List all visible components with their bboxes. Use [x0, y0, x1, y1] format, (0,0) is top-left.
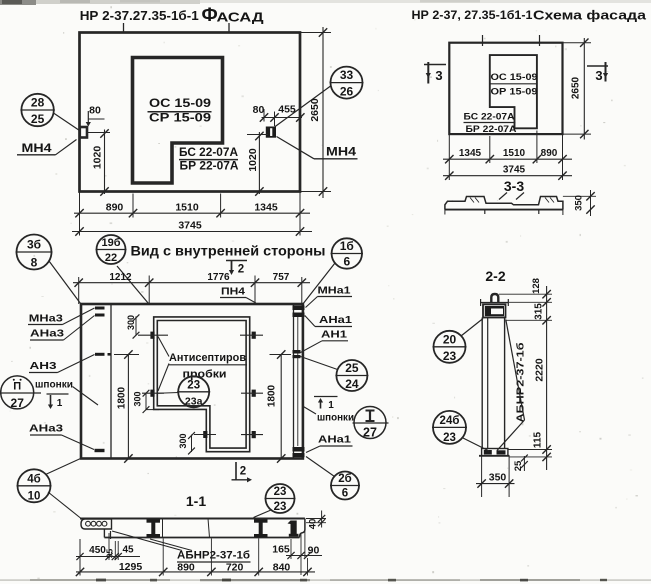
svg-text:БР 22-07А: БР 22-07А — [180, 161, 239, 173]
svg-text:СР 15-09: СР 15-09 — [149, 113, 211, 125]
svg-text:МН4: МН4 — [326, 147, 357, 159]
svg-text:6: 6 — [343, 255, 350, 269]
svg-text:3б: 3б — [27, 238, 41, 252]
svg-text:23: 23 — [443, 349, 457, 363]
svg-text:1345: 1345 — [459, 148, 482, 159]
svg-text:24: 24 — [345, 377, 359, 391]
svg-text:45: 45 — [122, 545, 134, 556]
svg-text:80: 80 — [89, 105, 101, 117]
svg-text:350: 350 — [489, 472, 507, 484]
svg-text:3745: 3745 — [178, 220, 202, 232]
svg-text:АНа1: АНа1 — [318, 434, 351, 446]
svg-text:АБНР2-37-1б: АБНР2-37-1б — [177, 550, 250, 562]
svg-text:26: 26 — [340, 85, 354, 99]
svg-text:2б: 2б — [338, 473, 352, 485]
svg-text:1212: 1212 — [109, 272, 132, 283]
svg-text:90: 90 — [308, 545, 320, 557]
svg-text:АБНР2-37-1б: АБНР2-37-1б — [515, 342, 527, 423]
svg-text:25: 25 — [513, 460, 524, 471]
svg-text:2650: 2650 — [571, 76, 582, 99]
svg-text:2-2: 2-2 — [485, 268, 505, 284]
svg-text:1020: 1020 — [92, 146, 104, 170]
svg-text:шпонки: шпонки — [35, 379, 73, 391]
svg-text:1020: 1020 — [247, 148, 259, 172]
svg-text:757: 757 — [273, 272, 290, 283]
svg-text:350: 350 — [574, 195, 585, 211]
svg-text:БР 22-07А: БР 22-07А — [466, 124, 517, 135]
svg-text:27: 27 — [11, 396, 25, 410]
svg-text:28: 28 — [31, 96, 45, 110]
svg-text:22: 22 — [105, 252, 117, 264]
svg-text:Антисептиров: Антисептиров — [169, 352, 246, 364]
svg-text:БС 22-07А: БС 22-07А — [464, 112, 515, 123]
svg-text:720: 720 — [226, 562, 244, 574]
svg-text:27: 27 — [363, 426, 377, 440]
svg-text:23: 23 — [274, 486, 287, 498]
svg-text:Ф: Ф — [202, 5, 218, 26]
svg-text:БС 22-07А: БС 22-07А — [179, 147, 238, 159]
svg-text:8: 8 — [31, 256, 38, 270]
svg-text:3-3: 3-3 — [504, 178, 524, 194]
svg-text:2220: 2220 — [534, 358, 546, 382]
svg-text:2: 2 — [240, 466, 246, 478]
svg-text:МН4: МН4 — [22, 143, 53, 155]
svg-text:3: 3 — [435, 68, 442, 83]
svg-text:3745: 3745 — [503, 165, 526, 176]
svg-text:40: 40 — [308, 519, 319, 530]
svg-text:шпонки: шпонки — [317, 412, 354, 424]
svg-text:П: П — [13, 381, 21, 393]
svg-text:АН1: АН1 — [321, 329, 347, 341]
svg-text:3: 3 — [595, 68, 602, 83]
svg-text:315: 315 — [534, 303, 545, 320]
svg-text:25: 25 — [345, 361, 359, 375]
svg-text:840: 840 — [273, 562, 291, 574]
svg-text:23: 23 — [443, 432, 456, 444]
svg-text:19б: 19б — [101, 237, 120, 249]
svg-text:ОР 15-09: ОР 15-09 — [491, 87, 538, 98]
svg-text:4б: 4б — [27, 473, 41, 485]
svg-text:НР 2-37, 27.35-1б1-1: НР 2-37, 27.35-1б1-1 — [412, 10, 534, 22]
svg-text:24б: 24б — [440, 415, 460, 427]
svg-text:300: 300 — [178, 433, 188, 448]
svg-text:ОС 15-09: ОС 15-09 — [149, 98, 211, 110]
svg-text:2: 2 — [238, 264, 244, 276]
svg-text:300: 300 — [133, 391, 143, 406]
svg-text:1800: 1800 — [267, 384, 278, 407]
svg-text:2650: 2650 — [309, 98, 321, 122]
svg-text:20: 20 — [443, 332, 457, 346]
svg-text:115: 115 — [533, 431, 544, 448]
svg-text:10: 10 — [28, 490, 41, 502]
svg-text:23а: 23а — [185, 395, 203, 407]
svg-text:1510: 1510 — [503, 148, 526, 159]
svg-text:23: 23 — [274, 501, 287, 513]
svg-text:АСАД: АСАД — [217, 11, 264, 25]
svg-text:Схема фасада: Схема фасада — [533, 9, 647, 23]
svg-text:НР 2-37.27.35-1б-1: НР 2-37.27.35-1б-1 — [80, 9, 199, 23]
svg-text:890: 890 — [106, 202, 124, 214]
svg-text:ПН4: ПН4 — [221, 287, 246, 298]
svg-text:1345: 1345 — [254, 202, 278, 214]
svg-text:1-1: 1-1 — [186, 493, 206, 509]
svg-text:890: 890 — [177, 562, 195, 574]
svg-text:1: 1 — [328, 400, 334, 411]
svg-text:1: 1 — [57, 398, 63, 409]
svg-text:АН3: АН3 — [30, 360, 57, 372]
svg-text:МНа3: МНа3 — [29, 313, 63, 325]
svg-text:6: 6 — [342, 488, 348, 500]
svg-text:ОС 15-09: ОС 15-09 — [491, 72, 538, 83]
svg-text:МНа1: МНа1 — [318, 285, 351, 297]
svg-text:АНа1: АНа1 — [319, 314, 352, 326]
svg-text:25: 25 — [31, 112, 45, 126]
svg-text:1295: 1295 — [119, 561, 143, 573]
svg-text:1800: 1800 — [117, 386, 128, 409]
svg-text:128: 128 — [531, 278, 542, 294]
svg-text:33: 33 — [340, 68, 354, 82]
svg-text:80: 80 — [253, 104, 265, 116]
svg-text:АНа3: АНа3 — [30, 328, 64, 340]
svg-text:300: 300 — [126, 315, 136, 330]
svg-text:23: 23 — [187, 379, 200, 391]
svg-text:1б: 1б — [340, 239, 354, 253]
svg-text:Вид с внутренней стороны: Вид с внутренней стороны — [131, 244, 326, 259]
svg-text:165: 165 — [272, 544, 290, 556]
svg-text:1776: 1776 — [207, 272, 230, 283]
svg-text:1510: 1510 — [175, 202, 199, 214]
svg-text:890: 890 — [541, 148, 558, 159]
svg-text:АНа3: АНа3 — [29, 423, 63, 435]
